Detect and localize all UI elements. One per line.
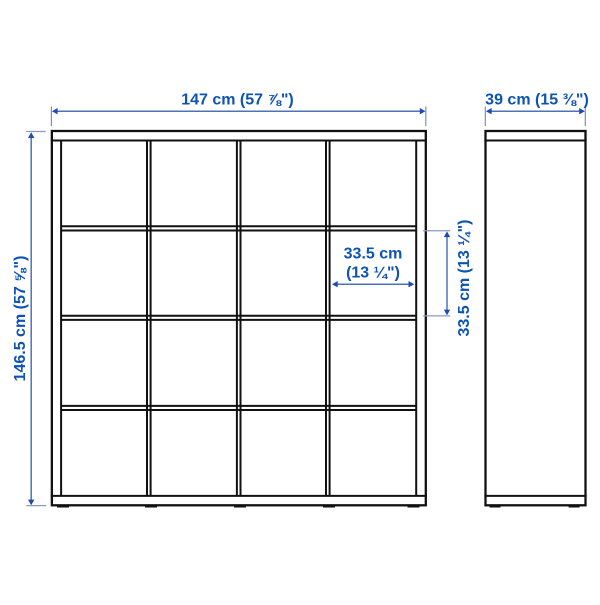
svg-text:146.5 cm (57 ⅝"): 146.5 cm (57 ⅝"): [12, 256, 29, 382]
svg-text:33.5 cm (13 ¼"): 33.5 cm (13 ¼"): [456, 220, 473, 337]
svg-text:(13 ¼"): (13 ¼"): [346, 264, 400, 281]
svg-text:39 cm (15 ⅜"): 39 cm (15 ⅜"): [485, 92, 589, 109]
svg-text:147 cm (57 ⅞"): 147 cm (57 ⅞"): [181, 92, 294, 109]
svg-text:33.5 cm: 33.5 cm: [344, 246, 403, 263]
